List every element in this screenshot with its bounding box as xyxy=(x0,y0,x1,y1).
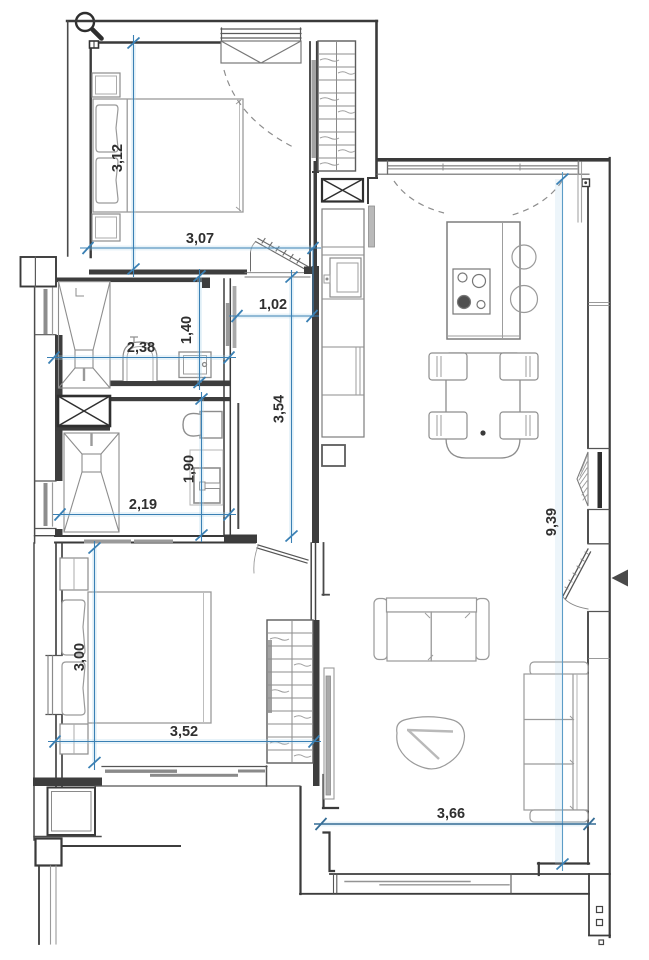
svg-text:2,19: 2,19 xyxy=(129,497,157,513)
svg-text:2,38: 2,38 xyxy=(127,340,155,356)
svg-text:3,07: 3,07 xyxy=(186,231,214,247)
svg-text:3,12: 3,12 xyxy=(110,144,126,172)
svg-text:9,39: 9,39 xyxy=(544,508,560,536)
svg-text:1,02: 1,02 xyxy=(259,297,287,313)
svg-text:3,00: 3,00 xyxy=(72,643,88,671)
svg-text:3,66: 3,66 xyxy=(437,806,465,822)
svg-text:1,40: 1,40 xyxy=(179,316,195,344)
svg-text:3,54: 3,54 xyxy=(272,395,288,423)
svg-text:1,90: 1,90 xyxy=(182,455,198,483)
svg-text:3,52: 3,52 xyxy=(170,724,198,740)
